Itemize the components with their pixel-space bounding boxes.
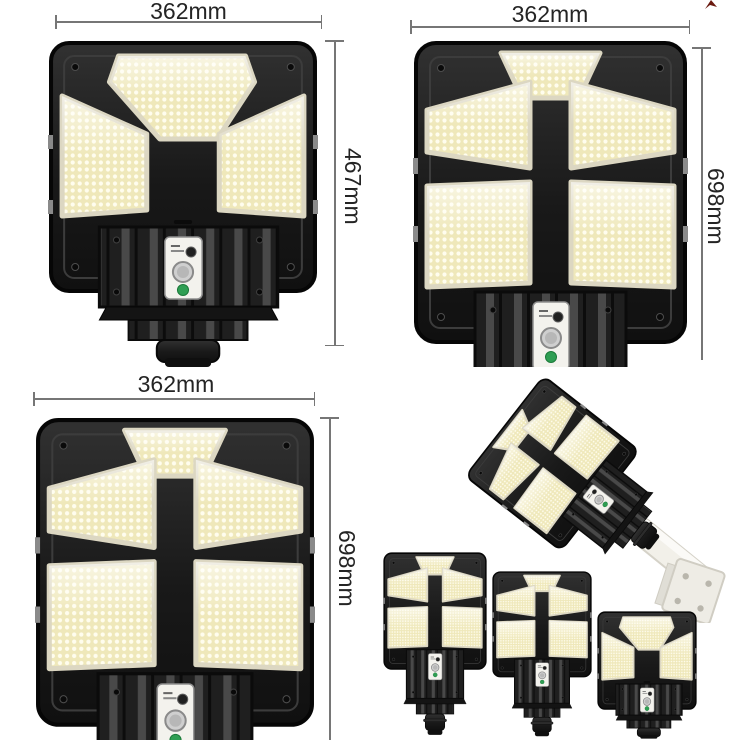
lamp-size-large-image — [383, 552, 487, 738]
height-dimension-line — [334, 40, 336, 346]
product-dimension-collage: 362mm 467mm 362mm 698mm 362mm 698mm — [0, 0, 740, 740]
height-dimension-label: 467mm — [341, 148, 365, 225]
width-dimension-line — [410, 26, 690, 28]
height-dimension-label: 698mm — [704, 168, 728, 245]
lamp-size-medium-image — [492, 571, 592, 739]
corner-fragment — [704, 0, 718, 9]
lamp-front-5panel-image — [35, 417, 315, 740]
width-dimension-label: 362mm — [55, 0, 322, 23]
height-dimension-line — [329, 417, 331, 740]
width-dimension-line — [33, 398, 315, 400]
lamp-size-small-image — [597, 611, 697, 739]
width-dimension-label: 362mm — [410, 2, 690, 26]
lamp-front-3panel-image — [48, 40, 318, 368]
height-dimension-label: 698mm — [335, 530, 359, 607]
width-dimension-line — [55, 21, 322, 23]
width-dimension-label: 362mm — [35, 372, 317, 396]
lamp-front-5panel-image — [413, 40, 688, 367]
